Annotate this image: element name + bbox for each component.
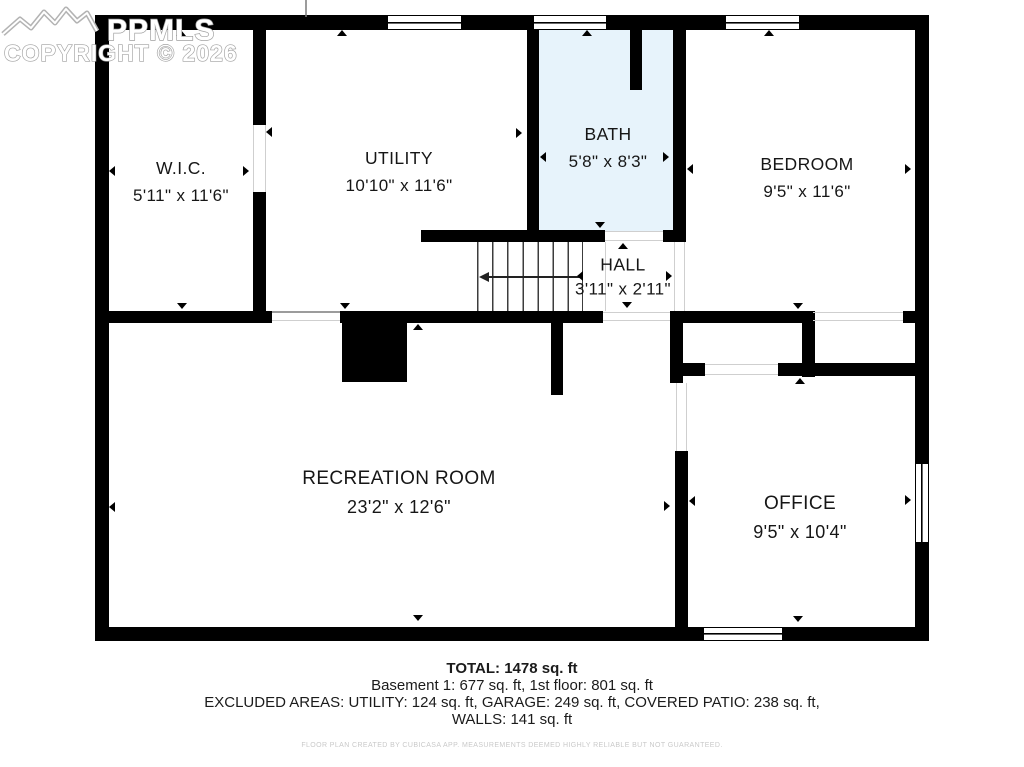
room-label-office: OFFICE 9'5" x 10'4" bbox=[753, 493, 847, 543]
opening-bedroom-bottom-line bbox=[813, 312, 903, 313]
window-bedroom bbox=[725, 15, 800, 30]
ppmls-watermark: PPMLS COPYRIGHT © 2026 bbox=[0, 0, 330, 75]
room-name: BATH bbox=[569, 124, 648, 145]
wall-wic-bottom bbox=[95, 311, 272, 323]
measure-arrow-icon bbox=[905, 164, 911, 174]
window-office-right bbox=[915, 463, 929, 543]
room-dimensions: 3'11" x 2'11" bbox=[575, 280, 671, 300]
wall-outer-top bbox=[95, 15, 929, 30]
opening-hall-bedroom-line bbox=[684, 242, 685, 311]
measure-arrow-icon bbox=[413, 615, 423, 621]
measure-arrow-icon bbox=[243, 166, 249, 176]
window-office-bottom bbox=[703, 627, 783, 641]
measure-arrow-icon bbox=[618, 243, 628, 249]
measure-arrow-icon bbox=[905, 495, 911, 505]
opening-hall-top-line bbox=[605, 231, 663, 232]
measure-arrow-icon bbox=[516, 128, 522, 138]
room-label-hall: HALL 3'11" x 2'11" bbox=[575, 255, 671, 300]
opening-office-door-line bbox=[676, 383, 677, 451]
room-label-bedroom: BEDROOM 9'5" x 11'6" bbox=[760, 154, 853, 202]
opening-hall-top-line bbox=[605, 240, 663, 241]
measure-arrow-icon bbox=[795, 378, 805, 384]
measure-arrow-icon bbox=[413, 324, 423, 330]
measure-arrow-icon bbox=[622, 302, 632, 308]
measure-arrow-icon bbox=[176, 30, 186, 36]
measure-arrow-icon bbox=[177, 303, 187, 309]
room-dimensions: 10'10" x 11'6" bbox=[345, 176, 452, 196]
measure-arrow-icon bbox=[109, 166, 115, 176]
room-name: HALL bbox=[575, 255, 671, 276]
wall-outer-right bbox=[915, 15, 929, 641]
floor-areas-text: Basement 1: 677 sq. ft, 1st floor: 801 s… bbox=[0, 677, 1024, 694]
measure-arrow-icon bbox=[266, 127, 272, 137]
measure-arrow-icon bbox=[340, 303, 350, 309]
wall-utility-bath bbox=[527, 29, 539, 242]
measure-arrow-icon bbox=[764, 30, 774, 36]
room-label-recreation-room: RECREATION ROOM 23'2" x 12'6" bbox=[302, 468, 496, 518]
room-name: OFFICE bbox=[753, 493, 847, 515]
floor-plan-page: W.I.C. 5'11" x 11'6" UTILITY 10'10" x 11… bbox=[0, 0, 1024, 767]
room-dimensions: 9'5" x 11'6" bbox=[760, 182, 853, 202]
opening-closet-line bbox=[705, 374, 778, 375]
room-dimensions: 5'11" x 11'6" bbox=[133, 186, 229, 206]
measure-arrow-icon bbox=[595, 222, 605, 228]
room-name: RECREATION ROOM bbox=[302, 468, 496, 490]
opening-hall-bedroom-line bbox=[674, 242, 675, 311]
total-area-text: TOTAL: 1478 sq. ft bbox=[0, 660, 1024, 677]
measure-arrow-icon bbox=[663, 152, 669, 162]
room-label-bath: BATH 5'8" x 8'3" bbox=[569, 124, 648, 172]
opening-utility-rec-line bbox=[272, 311, 340, 313]
wall-tab-right bbox=[903, 311, 915, 323]
opening-hall-bottom-line bbox=[603, 312, 670, 313]
room-label-utility: UTILITY 10'10" x 11'6" bbox=[345, 148, 452, 196]
wall-outer-left bbox=[95, 15, 109, 641]
opening-bedroom-bottom-line bbox=[813, 320, 903, 321]
wall-outer-bottom bbox=[95, 627, 929, 641]
measure-arrow-icon bbox=[687, 164, 693, 174]
disclaimer-text: FLOOR PLAN CREATED BY CUBICASA APP. MEAS… bbox=[0, 742, 1024, 749]
room-label-wic: W.I.C. 5'11" x 11'6" bbox=[133, 158, 229, 206]
wall-rec-office-vertical bbox=[670, 311, 683, 383]
measure-arrow-icon bbox=[793, 616, 803, 622]
watermark-copyright: COPYRIGHT © 2026 bbox=[4, 40, 238, 66]
opening-hall-bottom-line bbox=[603, 320, 670, 321]
measure-arrow-icon bbox=[689, 496, 695, 506]
opening-utility-rec-line bbox=[272, 320, 340, 321]
wall-stair-top bbox=[421, 230, 605, 242]
room-dimensions: 9'5" x 10'4" bbox=[753, 522, 847, 543]
room-name: W.I.C. bbox=[133, 158, 229, 179]
measure-arrow-icon bbox=[664, 501, 670, 511]
room-dimensions: 5'8" x 8'3" bbox=[569, 152, 648, 172]
window-utility bbox=[387, 15, 462, 30]
opening-closet-line bbox=[705, 364, 778, 365]
measure-arrow-icon bbox=[793, 303, 803, 309]
wall-office-top bbox=[778, 363, 915, 376]
stair-direction-line bbox=[484, 276, 580, 278]
area-summary: TOTAL: 1478 sq. ft Basement 1: 677 sq. f… bbox=[0, 660, 1024, 728]
room-name: BEDROOM bbox=[760, 154, 853, 175]
stair-direction-arrow-icon bbox=[479, 272, 489, 282]
measure-arrow-icon bbox=[109, 502, 115, 512]
room-name: UTILITY bbox=[345, 148, 452, 169]
wall-bath-bedroom bbox=[673, 29, 686, 242]
walls-area-text: WALLS: 141 sq. ft bbox=[0, 711, 1024, 728]
excluded-areas-text: EXCLUDED AREAS: UTILITY: 124 sq. ft, GAR… bbox=[0, 694, 1024, 711]
measure-arrow-icon bbox=[540, 152, 546, 162]
chimney-block bbox=[342, 315, 407, 382]
room-dimensions: 23'2" x 12'6" bbox=[302, 497, 496, 518]
mountain-logo-icon bbox=[3, 9, 97, 34]
wall-l-stub bbox=[683, 363, 705, 376]
wall-wic-utility-lower bbox=[253, 192, 266, 323]
opening-wic-door-line bbox=[253, 125, 254, 192]
wall-bedroom-bottom bbox=[670, 311, 813, 323]
wall-office-left bbox=[675, 451, 688, 627]
opening-office-door-line bbox=[686, 383, 687, 451]
window-bath bbox=[533, 15, 607, 30]
wall-stair-stub bbox=[551, 323, 563, 395]
wall-bath-stub bbox=[630, 29, 642, 90]
measure-arrow-icon bbox=[337, 30, 347, 36]
measure-arrow-icon bbox=[582, 30, 592, 36]
wall-wic-utility-upper bbox=[253, 29, 266, 125]
